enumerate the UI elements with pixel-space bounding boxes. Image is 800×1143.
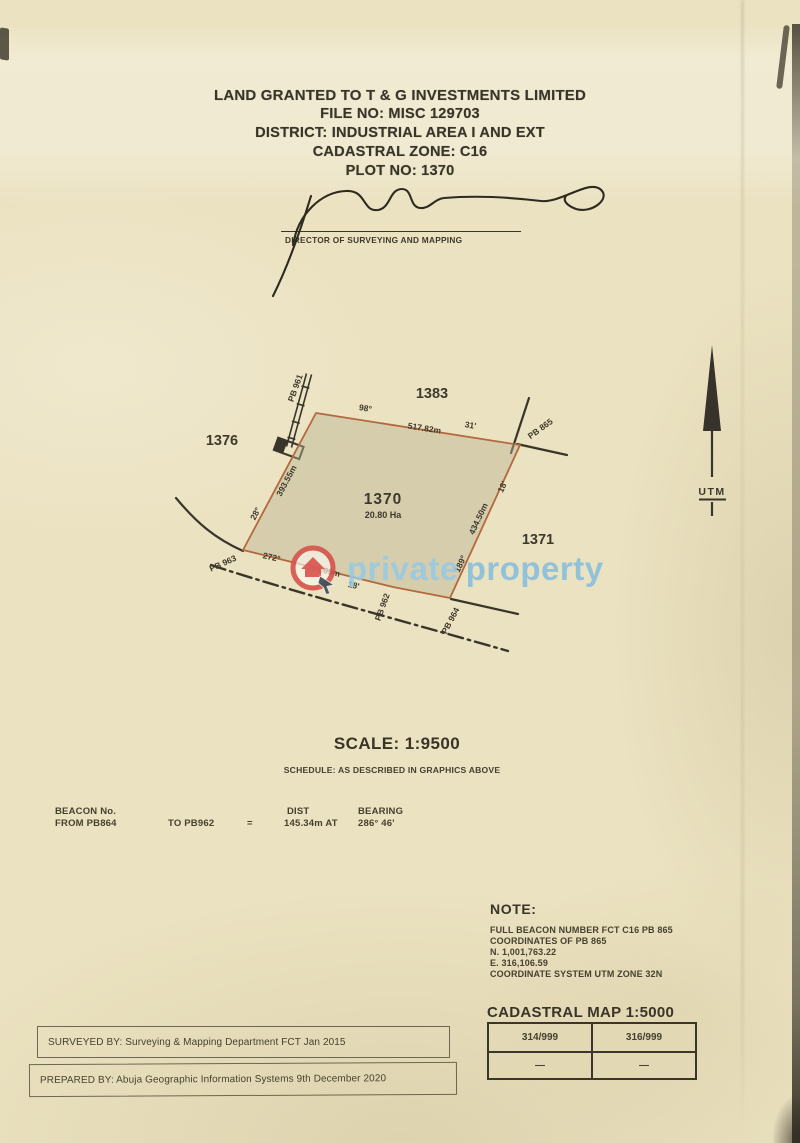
watermark: private property: [288, 543, 604, 595]
watermark-word-property: property: [466, 543, 604, 595]
scanned-cadastral-document: LAND GRANTED TO T & G INVESTMENTS LIMITE…: [0, 0, 800, 1143]
north-arrow-label: UTM: [698, 486, 725, 498]
beacon-pb865: PB 865: [526, 416, 555, 441]
plot-number-label: 1370: [364, 491, 402, 508]
signature-icon: [273, 187, 604, 296]
road-top-right-b: [517, 444, 567, 455]
plot-area-label: 20.80 Ha: [365, 510, 403, 520]
beacon-pb964: PB 964: [439, 605, 461, 635]
watermark-word-private: private: [347, 543, 459, 595]
road-left-curve: [176, 498, 243, 551]
north-arrow-icon: UTM: [698, 345, 726, 516]
neighbor-plot-top: 1383: [416, 386, 448, 402]
beacon-pb963: PB 963: [208, 553, 238, 574]
neighbor-plot-left: 1376: [206, 433, 238, 449]
edge-top-bearing-min: 31': [464, 419, 477, 431]
edge-top-bearing-deg: 98°: [358, 402, 373, 414]
road-bottom-right: [451, 599, 518, 614]
private-property-logo-icon: [288, 543, 340, 595]
